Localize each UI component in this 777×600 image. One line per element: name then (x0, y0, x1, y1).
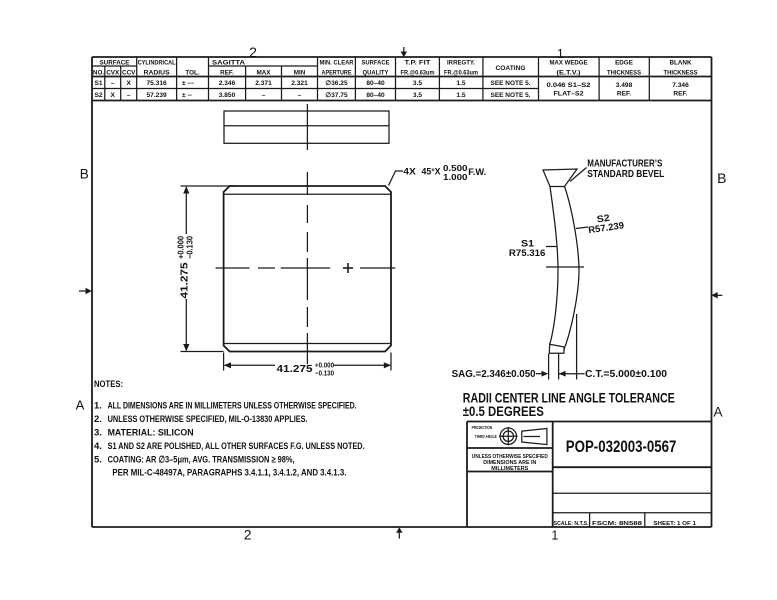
svg-text:−0.130: −0.130 (186, 235, 195, 259)
svg-text:2.371: 2.371 (255, 80, 272, 87)
svg-text:MIN. CLEAR: MIN. CLEAR (320, 60, 354, 67)
svg-text:EDGE: EDGE (615, 60, 633, 67)
svg-text:–: – (262, 92, 266, 99)
svg-text:41.275: 41.275 (277, 363, 313, 375)
svg-text:FR.@0.63um: FR.@0.63um (444, 70, 478, 77)
svg-text:41.275: 41.275 (179, 262, 191, 298)
svg-text:COATING: AR ∅3–5μm, AVG. TRANS: COATING: AR ∅3–5μm, AVG. TRANSMISSION ≥ … (108, 455, 295, 466)
svg-text:–: – (127, 92, 131, 99)
svg-text:REF.: REF. (617, 91, 631, 98)
svg-text:2: 2 (249, 44, 257, 60)
svg-text:4.: 4. (94, 441, 102, 452)
svg-text:3.850: 3.850 (219, 92, 236, 99)
svg-text:1.: 1. (94, 401, 102, 412)
svg-text:MATERIAL: SILICON: MATERIAL: SILICON (108, 428, 194, 439)
svg-text:2: 2 (244, 527, 252, 543)
svg-text:MANUFACTURER’S: MANUFACTURER’S (587, 159, 662, 170)
svg-text:R75.316: R75.316 (509, 248, 546, 259)
svg-text:B: B (80, 167, 89, 182)
svg-text:2.: 2. (94, 414, 102, 425)
svg-text:FSCM: 8N588: FSCM: 8N588 (592, 521, 642, 527)
svg-text:S1: S1 (94, 80, 102, 87)
svg-text:+0.000: +0.000 (177, 235, 186, 259)
svg-text:PROJECTION: PROJECTION (472, 425, 493, 430)
svg-text:(E.T.V.): (E.T.V.) (557, 70, 581, 77)
svg-text:45°X: 45°X (422, 167, 442, 177)
svg-text:THIRD ANGLE: THIRD ANGLE (475, 434, 497, 439)
svg-text:X: X (110, 92, 115, 99)
svg-text:SURFACE: SURFACE (362, 60, 390, 67)
svg-text:2.346: 2.346 (219, 80, 236, 87)
svg-text:MILLIMETERS: MILLIMETERS (491, 466, 529, 472)
svg-text:BLANK: BLANK (670, 60, 692, 67)
svg-text:1: 1 (557, 47, 564, 61)
svg-text:S2: S2 (94, 92, 102, 99)
svg-text:POP-032003-0567: POP-032003-0567 (566, 438, 677, 456)
svg-text:SHEET: 1 OF 1: SHEET: 1 OF 1 (653, 521, 696, 527)
svg-text:7.346: 7.346 (672, 82, 689, 89)
svg-text:CVX: CVX (106, 70, 120, 77)
svg-text:SAG.=2.346±0.050: SAG.=2.346±0.050 (452, 369, 536, 380)
svg-text:REF.: REF. (220, 70, 234, 77)
svg-text:APERTURE: APERTURE (322, 70, 352, 77)
svg-text:1.5: 1.5 (456, 80, 465, 87)
svg-text:IRREGTY.: IRREGTY. (447, 60, 475, 67)
svg-text:–: – (111, 80, 115, 87)
svg-text:80–40: 80–40 (366, 80, 385, 87)
svg-text:3.498: 3.498 (616, 82, 633, 89)
svg-text:CCV: CCV (122, 70, 136, 77)
svg-text:A: A (76, 398, 85, 413)
svg-text:∅37.75: ∅37.75 (325, 91, 348, 99)
svg-text:0.046 S1–S2: 0.046 S1–S2 (547, 82, 591, 89)
svg-text:COATING: COATING (496, 65, 526, 72)
svg-text:X: X (126, 80, 131, 87)
svg-text:−0.130: −0.130 (315, 369, 334, 378)
svg-text:STANDARD BEVEL: STANDARD BEVEL (587, 169, 664, 180)
svg-text:±0.5 DEGREES: ±0.5 DEGREES (463, 404, 544, 419)
svg-text:R57.239: R57.239 (588, 220, 625, 236)
svg-text:4X: 4X (403, 167, 416, 177)
svg-text:ALL DIMENSIONS ARE IN MILLIMET: ALL DIMENSIONS ARE IN MILLIMETERS UNLESS… (108, 401, 357, 412)
svg-text:1: 1 (551, 529, 558, 543)
svg-text:T.P. FIT: T.P. FIT (405, 60, 431, 67)
svg-text:3.5: 3.5 (413, 92, 422, 99)
svg-text:0.500: 0.500 (443, 164, 468, 173)
svg-text:SEE NOTE 5.: SEE NOTE 5. (491, 92, 531, 99)
svg-text:CYLINDRICAL: CYLINDRICAL (138, 60, 176, 67)
svg-text:± ---: ± --- (182, 80, 194, 87)
svg-text:1.000: 1.000 (443, 173, 468, 182)
svg-text:THICKNESS: THICKNESS (664, 70, 698, 77)
svg-text:FLAT–S2: FLAT–S2 (554, 91, 584, 98)
svg-text:S1 AND S2 ARE POLISHED, ALL OT: S1 AND S2 ARE POLISHED, ALL OTHER SURFAC… (108, 441, 365, 452)
svg-text:FR.@0.63um: FR.@0.63um (401, 70, 435, 77)
svg-text:3.5: 3.5 (413, 80, 422, 87)
svg-text:C.T.=5.000±0.100: C.T.=5.000±0.100 (585, 369, 667, 380)
svg-text:A: A (713, 405, 722, 420)
svg-text:QUALITY: QUALITY (363, 70, 390, 77)
svg-text:∅36.25: ∅36.25 (325, 79, 348, 87)
svg-text:SCALE: N.T.S.: SCALE: N.T.S. (554, 521, 590, 527)
svg-text:PER MIL-C-48497A, PARAGRAPHS 3: PER MIL-C-48497A, PARAGRAPHS 3.4.1.1, 3.… (112, 468, 346, 479)
svg-text:5.: 5. (94, 455, 102, 466)
svg-text:F.W.: F.W. (468, 167, 486, 177)
svg-text:2.321: 2.321 (291, 80, 308, 87)
svg-text:SURFACE: SURFACE (100, 60, 130, 67)
svg-text:SEE NOTE 5.: SEE NOTE 5. (491, 80, 531, 87)
svg-text:MAX WEDGE: MAX WEDGE (550, 60, 588, 67)
svg-text:1.5: 1.5 (456, 92, 465, 99)
svg-text:TOL.: TOL. (185, 70, 199, 77)
svg-text:THICKNESS: THICKNESS (607, 70, 641, 77)
svg-text:NOTES:: NOTES: (94, 379, 123, 390)
svg-text:80–40: 80–40 (366, 92, 385, 99)
svg-text:B: B (717, 170, 726, 186)
svg-text:75.316: 75.316 (147, 80, 168, 87)
svg-text:UNLESS OTHERWISE SPECIFIED, MI: UNLESS OTHERWISE SPECIFIED, MIL-O-13830 … (108, 414, 308, 425)
svg-text:–: – (298, 92, 302, 99)
svg-text:RADIUS: RADIUS (144, 70, 170, 77)
svg-text:3.: 3. (94, 428, 102, 439)
svg-text:MIN: MIN (294, 70, 306, 77)
svg-text:NO.: NO. (93, 70, 104, 77)
svg-text:± --: ± -- (182, 92, 192, 99)
svg-text:SAGITTA: SAGITTA (212, 60, 246, 67)
svg-text:MAX: MAX (257, 70, 272, 77)
svg-text:REF.: REF. (673, 91, 687, 98)
svg-text:57.239: 57.239 (147, 92, 168, 99)
